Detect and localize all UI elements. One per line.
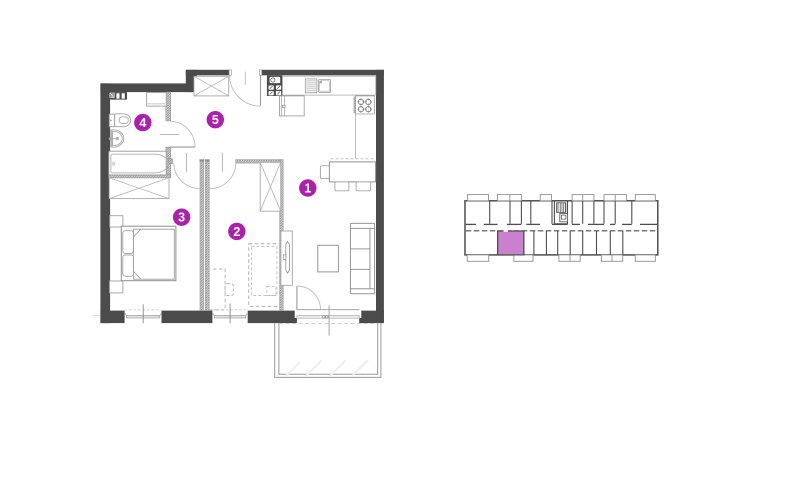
svg-text:5: 5: [212, 113, 219, 127]
svg-text:2: 2: [233, 225, 240, 239]
svg-text:1: 1: [304, 181, 311, 195]
svg-text:4: 4: [139, 116, 146, 130]
svg-text:3: 3: [178, 211, 185, 225]
